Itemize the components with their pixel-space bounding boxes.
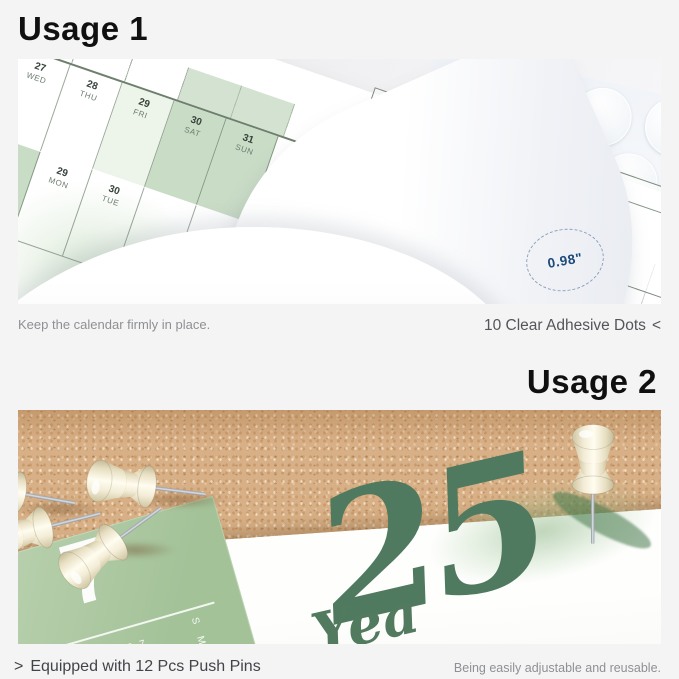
usage1-caption-right: 10 Clear Adhesive Dots< (484, 317, 661, 335)
section2-title: Usage 2 (18, 358, 661, 409)
usage1-photo: 27 WED 28 THU 29 FRI 30 SAT 31 SUN (18, 59, 661, 304)
usage2-caption-left: >Equipped with 12 Pcs Push Pins (14, 658, 261, 676)
mini-calendar-weekdays: S M (189, 616, 209, 644)
left-angle-arrow: < (646, 317, 661, 334)
usage1-caption-left: Keep the calendar firmly in place. (18, 317, 210, 332)
section1-title: Usage 1 (18, 0, 661, 59)
usage2-photo: 25 Yea JULY 7 6 13 20 27 5 12 19 26 S M (18, 410, 661, 644)
product-infographic-page: Usage 1 27 WED 28 (0, 0, 679, 679)
usage2-caption-row: >Equipped with 12 Pcs Push Pins Being ea… (18, 644, 661, 679)
usage2-caption-right: Being easily adjustable and reusable. (454, 658, 661, 675)
adhesive-dot (639, 93, 661, 163)
push-pin-standing (558, 422, 628, 552)
usage1-caption-right-text: 10 Clear Adhesive Dots (484, 317, 646, 334)
usage1-caption-row: Keep the calendar firmly in place. 10 Cl… (18, 304, 661, 358)
usage2-caption-left-text: Equipped with 12 Pcs Push Pins (30, 658, 260, 675)
year-word: Yea (307, 584, 424, 643)
right-angle-arrow: > (14, 658, 30, 675)
dot-size-label: 0.98" (546, 250, 583, 271)
